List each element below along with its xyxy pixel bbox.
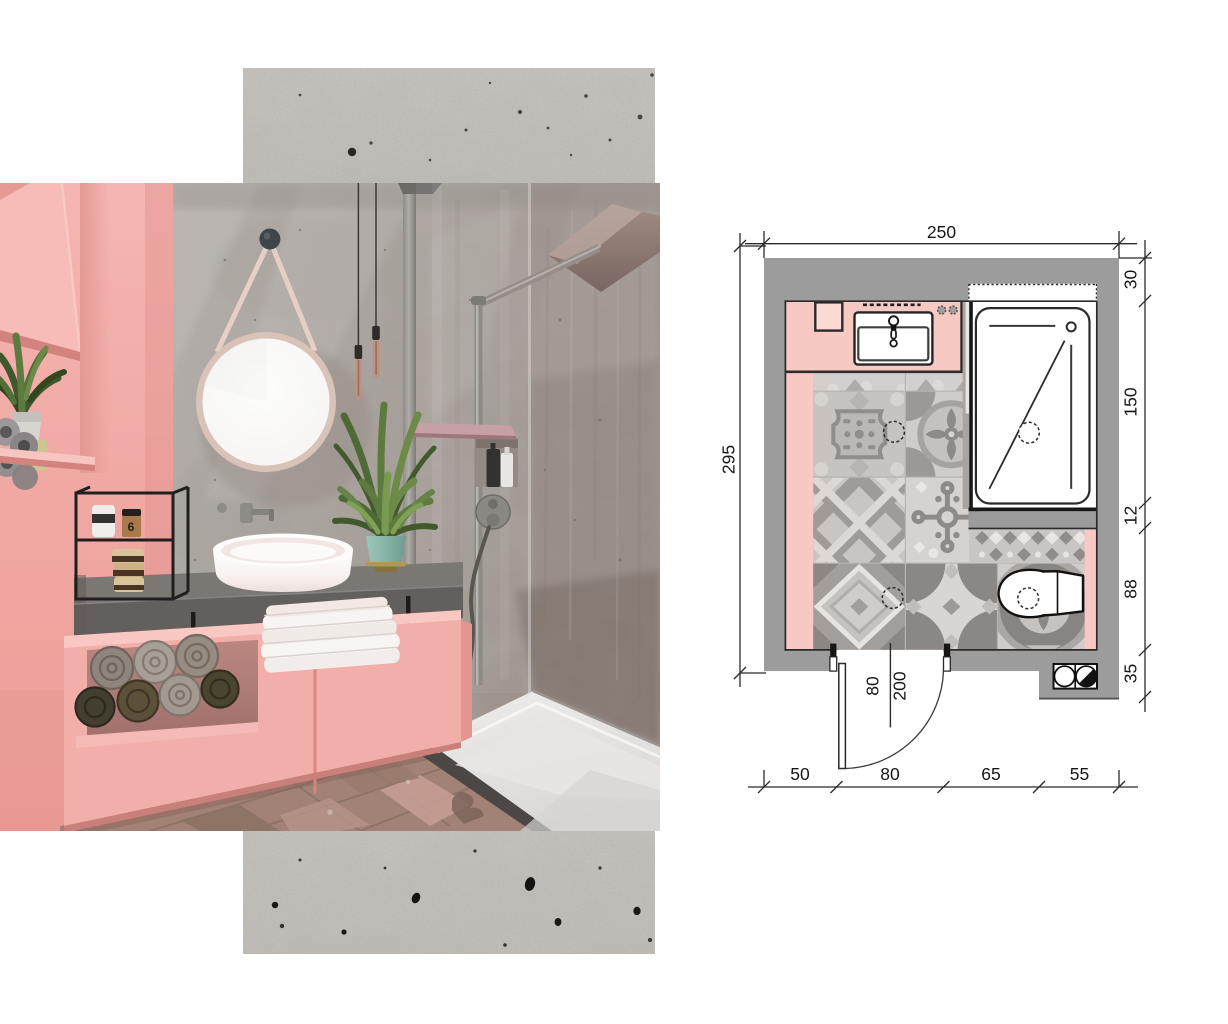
svg-text:80: 80 xyxy=(863,676,883,696)
svg-text:150: 150 xyxy=(1121,387,1141,416)
svg-text:88: 88 xyxy=(1121,579,1141,598)
svg-text:6: 6 xyxy=(128,520,135,534)
svg-text:295: 295 xyxy=(719,445,739,474)
svg-text:35: 35 xyxy=(1121,664,1141,683)
svg-text:250: 250 xyxy=(927,222,956,242)
svg-text:80: 80 xyxy=(880,764,900,784)
svg-text:200: 200 xyxy=(890,671,910,700)
svg-text:65: 65 xyxy=(981,764,1000,784)
svg-text:30: 30 xyxy=(1121,270,1141,290)
svg-text:50: 50 xyxy=(790,764,810,784)
svg-text:55: 55 xyxy=(1070,764,1089,784)
svg-text:12: 12 xyxy=(1121,506,1141,525)
